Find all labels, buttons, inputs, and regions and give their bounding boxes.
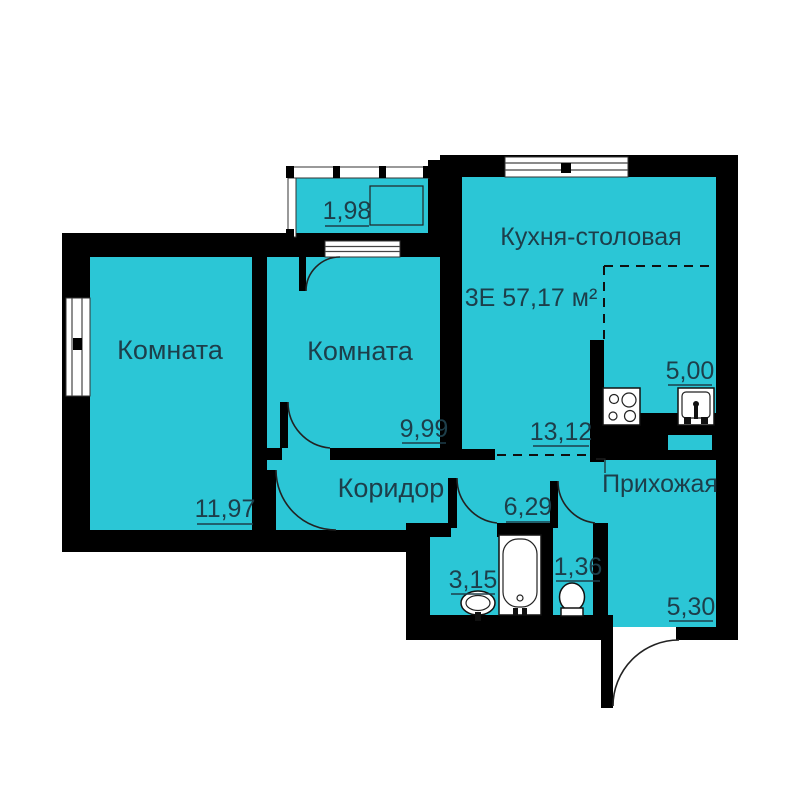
door-leaf (280, 402, 288, 448)
window-mullion (561, 163, 571, 173)
kitchen-zone-area: 5,00 (666, 357, 715, 385)
entry-opening (613, 627, 676, 640)
floor-plan-page: Комната Комната Кухня-столовая 3Е 57,17 … (0, 0, 800, 800)
room-mid-area: 9,99 (400, 415, 449, 443)
entry-door-icon (601, 640, 613, 708)
wall-segment (252, 257, 267, 460)
wall-niche (668, 435, 712, 450)
kitchen-sink-icon (678, 388, 714, 425)
room-left-label: Комната (117, 335, 224, 365)
room-left-floor (90, 257, 252, 530)
room-mid-label: Комната (307, 336, 414, 366)
toilet-icon (560, 583, 585, 616)
hallway-area: 5,30 (667, 593, 716, 621)
balcony-glazing-icon (288, 167, 429, 178)
glazing-mullion (286, 166, 294, 178)
wall-segment (541, 523, 553, 615)
glazing-mullion (286, 229, 294, 238)
wall-segment (330, 448, 440, 460)
kitchen-passage-floor (495, 449, 590, 460)
wall-segment (267, 448, 282, 460)
bathtub-icon (499, 535, 541, 615)
floor-plan: Комната Комната Кухня-столовая 3Е 57,17 … (0, 0, 800, 800)
balcony-area: 1,98 (323, 197, 372, 225)
room-left-area: 11,97 (195, 495, 256, 523)
wall-segment (406, 523, 430, 640)
glazing-mullion (379, 166, 386, 178)
balcony-glazing-icon (288, 178, 296, 237)
door-leaf (448, 478, 457, 528)
kitchen-label: Кухня-столовая (500, 223, 681, 251)
glazing-mullion (423, 166, 430, 178)
corridor-label: Коридор (338, 473, 445, 503)
window-mullion (73, 338, 82, 350)
kitchen-area: 13,12 (530, 418, 593, 446)
corridor-area: 6,29 (504, 493, 553, 521)
wall-segment (430, 523, 451, 537)
bathroom-area: 3,15 (449, 566, 498, 594)
glazing-mullion (333, 166, 340, 178)
toilet-area: 1,36 (554, 553, 603, 581)
stove-icon (603, 388, 640, 425)
door-leaf (267, 470, 276, 533)
window-icon (325, 241, 400, 257)
door-arc (613, 640, 679, 706)
apartment-title: 3Е 57,17 м² (465, 284, 598, 312)
wall-segment (462, 449, 495, 460)
door-leaf (299, 257, 306, 291)
hallway-label: Прихожая (602, 470, 718, 498)
